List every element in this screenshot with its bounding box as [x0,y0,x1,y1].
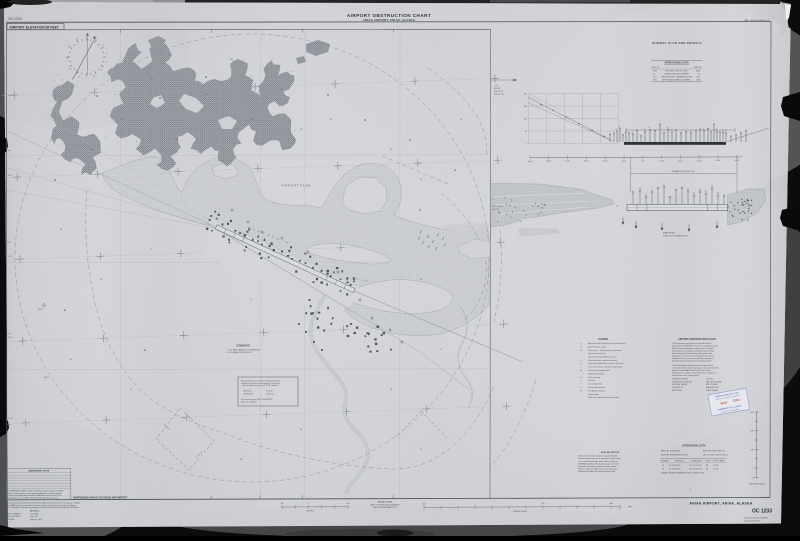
svg-text:1:12,000: 1:12,000 [706,379,713,381]
svg-text:61 34 30: 61 34 30 [266,391,273,393]
svg-text:Airport elevation (highest poi: Airport elevation (highest point on land… [588,342,626,345]
svg-text:100: 100 [751,449,754,451]
svg-text:85: 85 [130,389,132,391]
svg-text:70: 70 [725,131,727,133]
svg-text:50: 50 [752,478,754,480]
svg-text:40+00: 40+00 [565,161,569,163]
svg-text:56: 56 [722,130,724,132]
svg-text:236: 236 [175,139,178,141]
svg-text:0+00: 0+00 [641,160,645,162]
svg-text:+ 44: + 44 [494,85,498,87]
svg-text:150: 150 [69,69,72,71]
svg-text:84: 84 [706,465,708,467]
svg-text:STATE PLANE: STATE PLANE [706,389,718,392]
svg-text:66: 66 [711,186,713,188]
svg-text:60: 60 [105,62,107,64]
svg-text:76: 76 [649,127,651,129]
svg-text:VERTICAL SCALE: VERTICAL SCALE [749,483,766,486]
svg-text:RWY 28: RWY 28 [694,67,701,69]
svg-text:LATITUDE: LATITUDE [675,459,684,462]
svg-text:50:1: 50:1 [697,77,701,79]
svg-text:SCALE 1:12,000: SCALE 1:12,000 [378,501,392,504]
svg-text:28: 28 [730,202,732,204]
svg-text:RUNWAY PLAN AND PROFILE: RUNWAY PLAN AND PROFILE [652,41,702,45]
svg-text:1000: 1000 [609,503,613,505]
svg-text:88: 88 [706,468,708,470]
svg-text:N 61 34 41: N 61 34 41 [494,91,503,93]
svg-text:70: 70 [645,195,647,197]
svg-text:Upper Montclair Place: Upper Montclair Place [744,519,761,522]
svg-text:GRID TICKS: GRID TICKS [672,390,683,392]
svg-text:88: 88 [60,229,62,231]
svg-text:90: 90 [93,76,95,78]
svg-text:RUNWAY DATA DETERMINED BY FIEL: RUNWAY DATA DETERMINED BY FIELD SURVEY 1… [661,471,704,474]
svg-text:180: 180 [66,57,69,59]
svg-text:○: ○ [580,356,581,358]
svg-text:61 33: 61 33 [8,418,13,420]
svg-text:59: 59 [717,193,719,195]
svg-text:10: 10 [698,74,700,76]
svg-text:(NOTAMS) and Airport/Facility: (NOTAMS) and Airport/Facility Directory … [578,462,620,465]
svg-text:0.2 UP: 0.2 UP [713,468,719,470]
svg-text:82: 82 [705,191,707,193]
svg-text:Plot elevation above 1983 CONV: Plot elevation above 1983 CONVERSION: [241,398,273,401]
svg-text:VERTICAL EXAGGERATION 5:1: VERTICAL EXAGGERATION 5:1 [373,506,398,509]
svg-text:February 1983: February 1983 [30,519,42,521]
svg-text:50+00: 50+00 [547,161,551,163]
svg-text:0: 0 [308,503,309,505]
svg-text:28: 28 [662,468,664,470]
svg-text:LONGITUDE: LONGITUDE [691,460,702,462]
svg-text:○ M 15 ANIAK RIVER LIGHT: ○ M 15 ANIAK RIVER LIGHT [226,351,253,354]
svg-text:OPERATIONAL DATA: OPERATIONAL DATA [682,445,706,448]
svg-text:52: 52 [616,129,618,131]
svg-text:30: 30 [102,45,104,47]
svg-text:120: 120 [78,77,81,79]
svg-text:45: 45 [106,53,108,55]
svg-text:300: 300 [751,412,754,414]
svg-text:AIRPORT OBSTRUCTION CHART: AIRPORT OBSTRUCTION CHART [678,338,717,341]
svg-text:10: 10 [662,465,664,467]
svg-text:30+00: 30+00 [584,161,588,163]
svg-text:Transmission line: Transmission line [588,384,602,386]
svg-text:310: 310 [150,79,153,81]
svg-text:95: 95 [460,119,462,121]
svg-text:OPERATIONAL DATA: OPERATIONAL DATA [664,62,688,65]
svg-text:RATIO OF HORIZONTAL DISTANCES: RATIO OF HORIZONTAL DISTANCES [371,503,401,506]
svg-text:84: 84 [240,459,242,461]
svg-text:published by NOAA, Riverdale,: published by NOAA, Riverdale, Maryland 2… [578,470,616,473]
svg-text:OBSTRUCTION CLEARANCE SLOPE: OBSTRUCTION CLEARANCE SLOPE [661,76,693,79]
svg-text:240: 240 [120,119,123,121]
svg-text:AIRPORT OBSTRUCTION CHART: AIRPORT OBSTRUCTION CHART [347,13,431,18]
svg-text:Wind cone / light of obstructi: Wind cone / light of obstruction symbol [588,396,619,399]
svg-text:61 37: 61 37 [8,95,13,97]
svg-text:REVISED: REVISED [7,519,16,521]
svg-text:GRAPHIC SCALE: GRAPHIC SCALE [513,510,528,513]
svg-text:Obstruction — elevation top of: Obstruction — elevation top of obstructi… [588,349,621,352]
svg-text:59: 59 [699,189,701,191]
svg-text:92: 92 [420,179,422,181]
svg-text:RWY 10 THLD: RWY 10 THLD [492,206,504,208]
svg-text:Fan Marker / Beacon: Fan Marker / Beacon [588,390,605,392]
svg-text:10: 10 [616,206,618,208]
svg-text:72: 72 [440,349,442,351]
svg-text:255: 255 [280,89,283,91]
svg-text:61 34: 61 34 [8,337,13,339]
svg-text:59: 59 [687,189,689,191]
svg-text:159 33 13.03 W: 159 33 13.03 W [689,465,702,467]
svg-text:OC 1233: OC 1233 [8,17,22,21]
svg-text:Obstruction above approach sur: Obstruction above approach surface [588,359,617,362]
svg-text:It will be revised only when a: It will be revised only when a significa… [578,457,621,460]
svg-text:Air Cartographic Committee, ap: Air Cartographic Committee, approved by … [7,506,80,509]
svg-text:200: 200 [347,503,350,505]
svg-text:180: 180 [90,149,93,151]
svg-text:76: 76 [420,449,422,451]
svg-text:BM 21: BM 21 [38,309,43,311]
svg-text:information affecting aeronaut: information affecting aeronautical facil… [578,465,617,468]
svg-text:66: 66 [639,188,641,190]
svg-text:COMMENTS: COMMENTS [236,345,250,348]
svg-text:ELEV 84: ELEV 84 [492,209,499,211]
svg-text:shown hereon, date of field su: shown hereon, date of field survey. [672,374,700,377]
svg-text:221: 221 [300,129,303,131]
svg-text:Top elevation of trees: Top elevation of trees [588,386,605,389]
svg-text:June 1981: June 1981 [30,513,38,515]
svg-text:GEODETIC DATUM: GEODETIC DATUM [672,378,688,381]
svg-text:LATITUDE: LATITUDE [243,390,252,393]
svg-text:50:1: 50:1 [653,77,657,79]
svg-text:53: 53 [693,193,695,195]
svg-text:298: 298 [250,119,253,121]
svg-text:LAT 61 34 41 LON 159 32 34: LAT 61 34 41 LON 159 32 34 [703,453,728,456]
svg-text:Pole line: Pole line [588,380,595,382]
svg-text:should refer to current flight: should refer to current flight informati… [8,497,58,500]
svg-text:205: 205 [65,119,68,121]
svg-text:88: 88 [390,149,392,151]
svg-text:210: 210 [68,46,71,48]
svg-text:Reference: Alaska Supplement f: Reference: Alaska Supplement for operati… [578,468,618,471]
svg-text:AIRPORT REFERENCE POINT: AIRPORT REFERENCE POINT [661,453,689,456]
svg-text:4th Edition: 4th Edition [30,510,39,513]
svg-text:73: 73 [690,131,692,133]
svg-text:15: 15 [95,38,97,40]
svg-text:71: 71 [250,299,252,301]
svg-text:determining maximum take-off a: determining maximum take-off and landing… [672,359,712,362]
svg-text:10+00: 10+00 [622,161,626,163]
svg-text:RWY 10: RWY 10 [652,67,659,69]
svg-text:0: 0 [86,36,87,38]
svg-text:285: 285 [230,59,233,61]
svg-text:14: 14 [653,74,655,76]
svg-text:159 31 34.50 W: 159 31 34.50 W [689,468,702,470]
svg-text:66: 66 [420,279,422,281]
svg-text:10+00: 10+00 [659,160,663,162]
svg-text:82: 82 [100,279,102,281]
svg-text:ANIAK RIVER: ANIAK RIVER [663,231,675,234]
svg-text:AIRPORT ELEVATION 88 FEET: AIRPORT ELEVATION 88 FEET [10,25,60,29]
svg-text:Obstruction identified by numb: Obstruction identified by number in plan… [588,362,624,365]
svg-text:Clear zone flag: Clear zone flag [588,377,600,379]
svg-text:500: 500 [542,503,545,505]
svg-text:75: 75 [150,249,152,251]
svg-text:66: 66 [619,127,621,129]
svg-text:•52: •52 [580,350,583,352]
svg-text:ALASKA ZONE 7: ALASKA ZONE 7 [706,386,720,389]
svg-text:EFF RWY LGTH TO T-OFF: EFF RWY LGTH TO T-OFF [666,71,689,73]
svg-text:OC 1233: OC 1233 [752,508,772,514]
svg-text:100: 100 [281,503,284,505]
svg-text:0: 0 [753,468,754,470]
svg-text:APPROACH SURFACE CLEARED: APPROACH SURFACE CLEARED [662,79,691,82]
svg-text:PHOTOGRAPHY: PHOTOGRAPHY [7,512,22,515]
svg-text:LONGITUDE: LONGITUDE [243,394,254,396]
svg-text:67: 67 [663,184,665,186]
svg-text:500: 500 [423,503,426,505]
svg-text:LONGITUDE OF DATUM: LONGITUDE OF DATUM [672,380,692,383]
svg-text:ELEV: ELEV [706,460,711,462]
svg-text:61 34 43.90 N: 61 34 43.90 N [669,468,681,470]
svg-text:Trees, brush shown only when o: Trees, brush shown only when obstruction… [588,366,623,369]
svg-text:61 35: 61 35 [8,256,13,258]
svg-text:20+00: 20+00 [678,160,682,162]
svg-text:LEGEND: LEGEND [598,338,608,341]
svg-text:20+00: 20+00 [603,161,607,163]
svg-text:Obstruction below approach sur: Obstruction below approach surface [588,355,617,358]
svg-text:61 34 39.12 N: 61 34 39.12 N [669,465,681,467]
svg-text:60: 60 [667,127,669,129]
svg-text:0.2 UP: 0.2 UP [713,465,719,467]
svg-text:MSL 1929 ADJ: MSL 1929 ADJ [706,383,718,386]
svg-text:above mean sea level: above mean sea level [588,353,606,355]
svg-text:61 36: 61 36 [8,175,13,177]
svg-text:60+00: 60+00 [528,161,532,163]
svg-text:30+00: 30+00 [697,160,701,162]
svg-text:+: + [678,171,679,173]
svg-text:AIRPORT PLAN: AIRPORT PLAN [281,184,311,188]
svg-text:˄˄: ˄˄ [580,387,582,389]
svg-text:78: 78 [390,389,392,391]
svg-text:90: 90 [70,359,72,361]
svg-text:E 20-41-2-EUSC (233/PR): E 20-41-2-EUSC (233/PR) [744,517,768,519]
svg-text:RUNWAY: RUNWAY [661,459,670,462]
svg-text:265: 265 [205,94,208,96]
svg-text:96: 96 [330,119,332,121]
svg-text:July 1982: July 1982 [30,516,38,518]
svg-text:Airport reference point: Airport reference point [588,346,606,349]
svg-text:240: 240 [76,39,79,41]
svg-text:PROJECTION: PROJECTION [672,387,684,389]
svg-text:●: ● [580,360,581,362]
svg-text:NAD 1927 ALASKA: NAD 1927 ALASKA [706,380,722,383]
svg-text:PROF GRADE: PROF GRADE [713,459,726,462]
svg-text:159 32 15: 159 32 15 [266,394,274,396]
svg-text:SPECIAL NOTICE: SPECIAL NOTICE [601,451,620,454]
svg-text:Displaced threshold: Displaced threshold [588,372,604,375]
svg-text:CLEAR ZONE ELEV CHANGE: CLEAR ZONE ELEV CHANGE [664,73,690,76]
svg-text:ANIAK AIRPORT, ANIAK, ALASKA: ANIAK AIRPORT, ANIAK, ALASKA [689,502,752,506]
svg-text:▬: ▬ [580,370,582,372]
svg-text:76: 76 [632,132,634,134]
svg-text:RUNWAY 10/28 6000 X 100: RUNWAY 10/28 6000 X 100 [672,170,694,173]
svg-text:○ M 14 AERO BEACON ON HANGAR: ○ M 14 AERO BEACON ON HANGAR [226,348,261,351]
svg-text:6000: 6000 [653,71,657,73]
svg-text:●: ● [580,343,581,345]
svg-text:(HIGH PT) 88 FT RWY 28: (HIGH PT) 88 FT RWY 28 [703,451,725,453]
svg-text:Users should consult appropria: Users should consult appropriate Notices… [578,460,618,463]
svg-text:40+00: 40+00 [716,160,720,162]
svg-text:W159 32 34: W159 32 34 [494,94,504,96]
svg-text:AIRPORT ELEVATION: AIRPORT ELEVATION [661,450,681,453]
svg-text:This chart will not be revised: This chart will not be revised on a regu… [578,455,618,458]
svg-text:200: 200 [751,431,754,433]
svg-text:56: 56 [716,129,718,131]
svg-text:at time of original survey, se: at time of original survey, see OC 88-19… [241,384,279,387]
svg-text:Runway and stopway detail: Runway and stopway detail [588,369,610,372]
svg-text:METERS: METERS [306,511,314,513]
svg-text:75: 75 [100,70,102,72]
svg-text:6000: 6000 [696,71,700,73]
svg-text:VERTICAL DATUM: VERTICAL DATUM [672,383,688,386]
svg-text:FEET: FEET [628,507,632,509]
svg-text:BM 19: BM 19 [44,377,49,379]
svg-text:DIMENSIONS AND ELEVATIONS A: DIMENSIONS AND ELEVATIONS ARE IN FEET [73,496,128,499]
svg-text:80: 80 [300,429,302,431]
svg-text:Radio facility: Radio facility [588,393,598,396]
svg-text:FIELD SURVEY: FIELD SURVEY [7,516,21,518]
svg-text:AMENDMENT NOTE: AMENDMENT NOTE [28,470,49,473]
svg-text:ARP 88: ARP 88 [494,87,500,90]
svg-text:0: 0 [475,503,476,505]
svg-text:NAD 1927 = NAD 83: NAD 1927 = NAD 83 [241,401,257,404]
